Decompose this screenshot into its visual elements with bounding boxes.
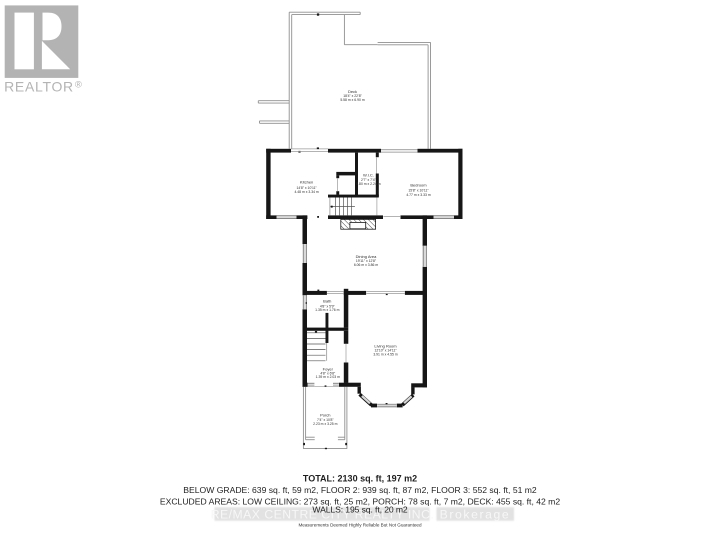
svg-text:BELOW GRADE: 639 sq. ft, 59 m2: BELOW GRADE: 639 sq. ft, 59 m2, FLOOR 2:…: [183, 485, 537, 495]
svg-text:1.35 m x 1.76 m: 1.35 m x 1.76 m: [315, 308, 339, 312]
svg-text:3.91 m x 4.55 m: 3.91 m x 4.55 m: [373, 353, 397, 357]
svg-text:Bedroom: Bedroom: [410, 182, 427, 187]
svg-text:4.48 m x 3.34 m: 4.48 m x 3.34 m: [294, 190, 318, 194]
svg-text:15'8" x 10'11": 15'8" x 10'11": [408, 189, 429, 193]
svg-text:Porch: Porch: [320, 413, 330, 418]
svg-text:®: ®: [75, 80, 82, 91]
svg-text:Measurements Deemed Highly Rel: Measurements Deemed Highly Reliable But …: [298, 522, 422, 527]
svg-text:6.06 m x 3.86 m: 6.06 m x 3.86 m: [354, 263, 378, 267]
svg-text:Kitchen: Kitchen: [300, 180, 313, 185]
svg-text:TOTAL: 2130 sq. ft, 197 m2: TOTAL: 2130 sq. ft, 197 m2: [303, 473, 417, 483]
svg-text:WALLS: 195 sq. ft, 20 m2: WALLS: 195 sq. ft, 20 m2: [312, 505, 408, 515]
svg-text:2.23 m x 3.25 m: 2.23 m x 3.25 m: [313, 422, 337, 426]
svg-text:Bath: Bath: [323, 299, 331, 304]
svg-text:5.58 m x 6.90 m: 5.58 m x 6.90 m: [340, 98, 364, 102]
svg-text:REALTOR: REALTOR: [4, 79, 74, 95]
svg-text:0.80 m x 2.24 m: 0.80 m x 2.24 m: [356, 182, 380, 186]
svg-text:4.77 m x 3.33 m: 4.77 m x 3.33 m: [406, 193, 430, 197]
svg-text:1.39 m x 2.03 m: 1.39 m x 2.03 m: [316, 375, 340, 379]
svg-text:W.I.C.: W.I.C.: [363, 172, 374, 177]
svg-text:Brokerage: Brokerage: [440, 507, 511, 521]
